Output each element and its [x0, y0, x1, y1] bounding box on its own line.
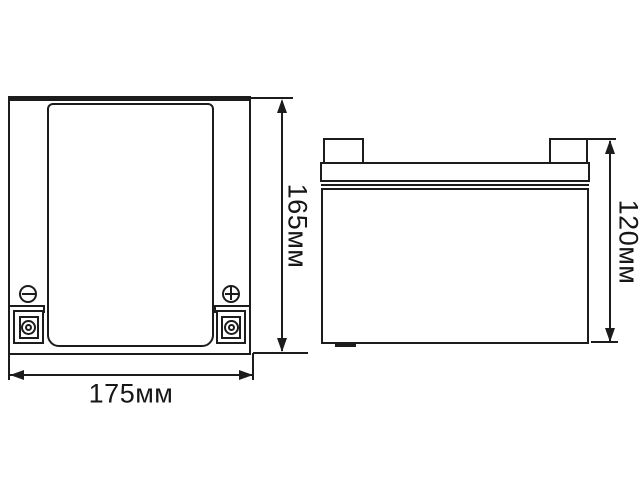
side-lid	[320, 162, 590, 182]
plus-slot-v	[230, 287, 232, 300]
dimension-line	[10, 374, 253, 376]
side-foot-tab	[335, 342, 356, 347]
arrowhead-right-icon	[239, 370, 253, 380]
left-terminal-bracket	[13, 310, 44, 344]
right-bracket-inner	[221, 316, 241, 339]
side-right-terminal-post	[549, 138, 588, 165]
extension-line-bottom	[253, 352, 308, 354]
arrowhead-up-icon	[605, 140, 615, 154]
front-height-label: 165мм	[284, 184, 311, 269]
arrowhead-down-icon	[277, 338, 287, 352]
arrowhead-up-icon	[277, 99, 287, 113]
ring-bushing-icon	[21, 320, 36, 335]
bushing-hole	[25, 324, 32, 331]
plus-screw-icon	[222, 285, 240, 303]
minus-screw-icon	[19, 285, 37, 303]
side-height-label: 120мм	[615, 200, 640, 285]
drawing-canvas: 165мм 175мм 120мм	[0, 0, 640, 480]
arrowhead-left-icon	[10, 370, 24, 380]
left-bracket-inner	[19, 316, 39, 339]
front-width-label: 175мм	[89, 381, 174, 408]
right-terminal-bracket	[216, 310, 246, 344]
side-left-terminal-post	[323, 138, 364, 165]
minus-slot	[22, 293, 35, 295]
bushing-hole	[228, 324, 235, 331]
side-body	[321, 188, 589, 344]
arrowhead-down-icon	[605, 328, 615, 342]
front-view-label-panel	[47, 103, 214, 347]
side-lid-seam-line	[321, 184, 589, 186]
dimension-line	[609, 141, 611, 342]
ring-bushing-icon	[224, 320, 239, 335]
